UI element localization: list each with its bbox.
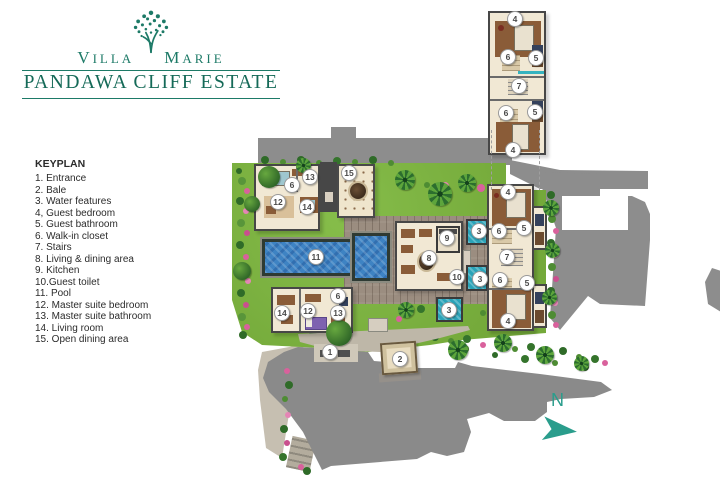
plan-marker-6: 6	[284, 177, 300, 193]
plan-marker-14: 14	[299, 199, 315, 215]
north-arrow-icon	[542, 413, 579, 446]
plan-marker-5: 5	[516, 220, 532, 236]
plan-marker-7: 7	[511, 78, 527, 94]
plan-marker-15: 15	[341, 165, 357, 181]
plan-marker-6: 6	[498, 105, 514, 121]
plan-marker-14: 14	[274, 305, 290, 321]
plan-marker-9: 9	[439, 230, 455, 246]
plan-markers: 1233344556666789101112121313141415465765…	[0, 0, 720, 480]
plan-marker-13: 13	[302, 169, 318, 185]
north-label: N	[551, 390, 564, 411]
plan-marker-6: 6	[330, 288, 346, 304]
plan-marker-5: 5	[528, 50, 544, 66]
plan-marker-2: 2	[392, 351, 408, 367]
plan-marker-5: 5	[527, 104, 543, 120]
site-plan-canvas: 1233344556666789101112121313141415465765…	[0, 0, 720, 480]
plan-marker-3: 3	[472, 271, 488, 287]
plan-marker-13: 13	[330, 305, 346, 321]
plan-marker-7: 7	[499, 249, 515, 265]
plan-marker-4: 4	[500, 313, 516, 329]
plan-marker-6: 6	[492, 272, 508, 288]
plan-marker-3: 3	[441, 302, 457, 318]
plan-marker-10: 10	[449, 269, 465, 285]
plan-marker-6: 6	[491, 223, 507, 239]
plan-marker-12: 12	[300, 303, 316, 319]
plan-marker-1: 1	[322, 344, 338, 360]
plan-marker-8: 8	[421, 250, 437, 266]
plan-marker-11: 11	[308, 249, 324, 265]
plan-marker-3: 3	[471, 223, 487, 239]
plan-marker-4: 4	[500, 184, 516, 200]
plan-marker-12: 12	[270, 194, 286, 210]
plan-marker-4: 4	[505, 142, 521, 158]
plan-marker-5: 5	[519, 275, 535, 291]
villa-site-plan-page: Villa Marie PANDAWA CLIFF ESTATE KEYPLAN…	[0, 0, 720, 480]
plan-marker-4: 4	[507, 11, 523, 27]
plan-marker-6: 6	[500, 49, 516, 65]
